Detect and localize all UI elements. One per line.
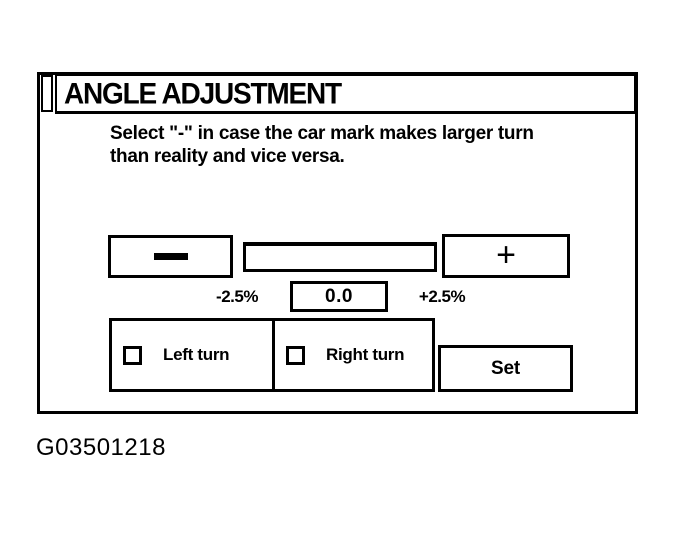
left-turn-label: Left turn xyxy=(163,345,229,365)
adjustment-value-display: 0.0 xyxy=(290,281,388,312)
set-button[interactable]: Set xyxy=(438,345,573,392)
right-turn-option[interactable]: Right turn xyxy=(275,321,432,389)
dialog-title: ANGLE ADJUSTMENT xyxy=(64,77,341,111)
left-turn-option[interactable]: Left turn xyxy=(112,321,275,389)
scale-max-label: +2.5% xyxy=(410,287,474,307)
page: ANGLE ADJUSTMENT Select "-" in case the … xyxy=(0,0,679,533)
title-bar: ANGLE ADJUSTMENT xyxy=(55,74,636,114)
right-turn-label: Right turn xyxy=(326,345,404,365)
adjustment-gauge-track xyxy=(243,242,437,272)
instruction-line-1: Select "-" in case the car mark makes la… xyxy=(110,122,580,145)
title-tab-strip xyxy=(41,75,53,112)
instruction-line-2: than reality and vice versa. xyxy=(110,145,580,168)
figure-caption: G03501218 xyxy=(36,434,166,462)
angle-adjustment-dialog: ANGLE ADJUSTMENT Select "-" in case the … xyxy=(37,72,638,414)
left-turn-checkbox[interactable] xyxy=(123,346,142,365)
minus-icon xyxy=(154,253,188,260)
minus-button[interactable] xyxy=(108,235,233,278)
turn-selection-box: Left turn Right turn xyxy=(109,318,435,392)
scale-min-label: -2.5% xyxy=(205,287,269,307)
plus-icon: + xyxy=(496,238,516,272)
right-turn-checkbox[interactable] xyxy=(286,346,305,365)
instruction-text: Select "-" in case the car mark makes la… xyxy=(110,122,580,168)
plus-button[interactable]: + xyxy=(442,234,570,278)
